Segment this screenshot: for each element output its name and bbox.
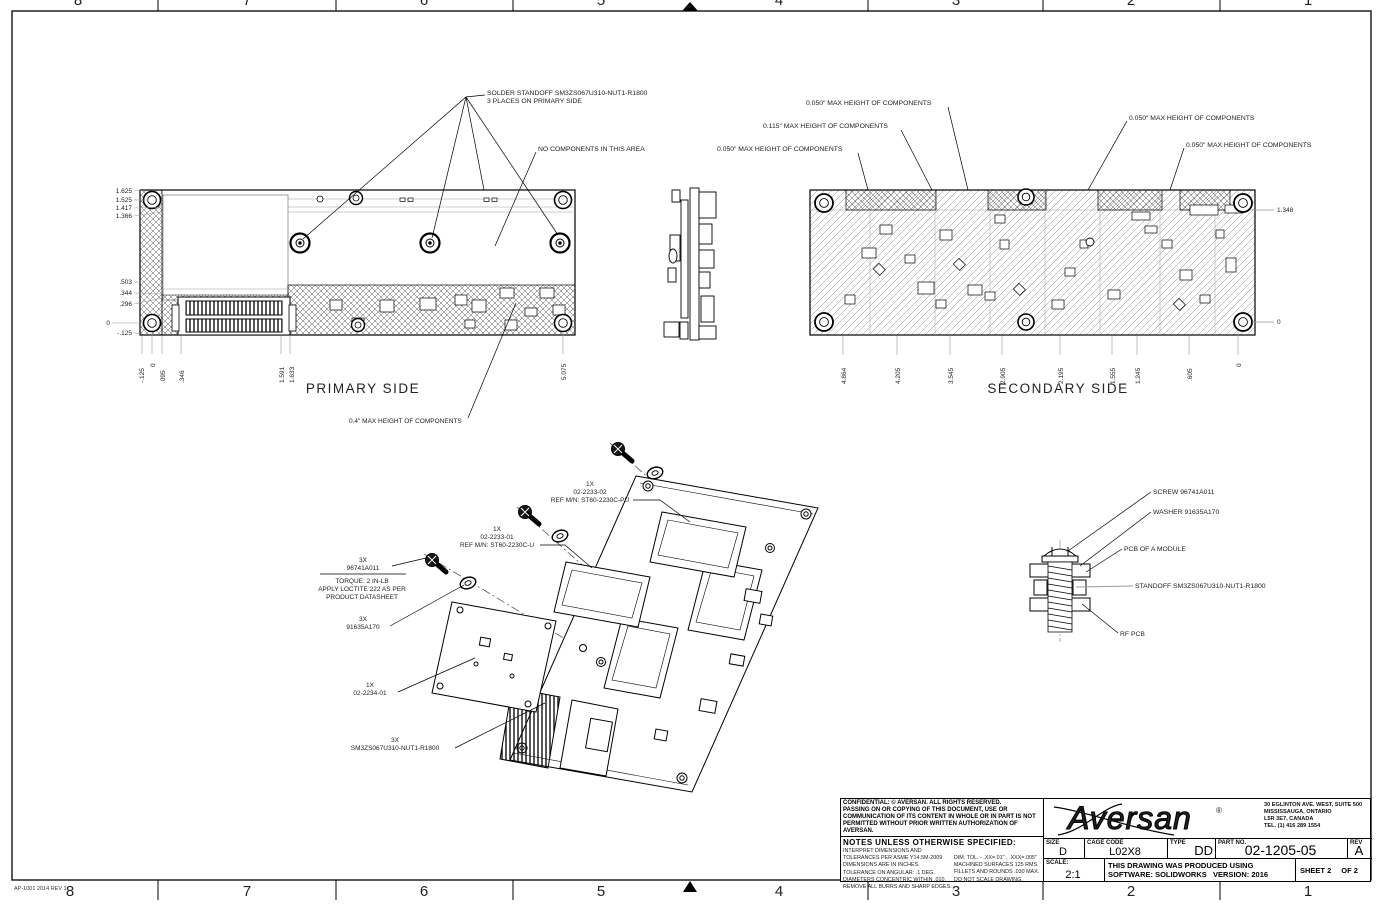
- standoff-detail-view: SCREW 96741A011 WASHER 91635A170 PCB OF …: [1030, 489, 1266, 642]
- title-block: CONFIDENTIAL: © AVERSAN. ALL RIGHTS RESE…: [840, 798, 1371, 882]
- zone-label: 7: [232, 883, 262, 900]
- zone-label: 1: [1293, 0, 1323, 9]
- label-nut-qty: 3X: [391, 737, 400, 744]
- detail-washer-label: WASHER 91635A170: [1153, 509, 1219, 516]
- zone-label: 2: [1116, 0, 1146, 9]
- notes-title: NOTES UNLESS OTHERWISE SPECIFIED:: [841, 837, 1043, 847]
- dim: -.125: [117, 330, 132, 337]
- company-address: 30 EGLINTON AVE. WEST, SUITE 500 MISSISS…: [1262, 799, 1372, 838]
- label-module-qty: 1X: [366, 682, 375, 689]
- zone-label: 5: [586, 0, 616, 9]
- dim: 1.525: [116, 197, 133, 204]
- type-field: TYPE DD: [1168, 839, 1216, 858]
- zone-label: 4: [764, 883, 794, 900]
- zone-label: 4: [764, 0, 794, 9]
- label-screw-pn: 96741A011: [347, 565, 380, 572]
- produced-with-field: THIS DRAWING WAS PRODUCED USING SOFTWARE…: [1105, 859, 1296, 881]
- primary-side-view: 1.625 1.525 1.417 1.366 .503 .344 .296 0…: [106, 90, 647, 425]
- dim: .503: [119, 279, 132, 286]
- detail-screw-label: SCREW 96741A011: [1153, 489, 1215, 496]
- label-washer-qty: 3X: [359, 616, 368, 623]
- exploded-assembly-view: 1X 02-2233-02 REF M/N: ST60-2230C-PU 1X …: [318, 443, 818, 793]
- label-torque-2: APPLY LOCTITE 222 AS PER: [318, 586, 406, 593]
- callout-no-components: NO COMPONENTS IN THIS AREA: [538, 146, 645, 153]
- label-conn-pu-qty: 1X: [586, 481, 595, 488]
- form-stamp: AP-1001 2014 REV 1: [14, 886, 67, 892]
- dim: 4.205: [895, 367, 902, 384]
- drawing-sheet: 1.625 1.525 1.417 1.366 .503 .344 .296 0…: [0, 0, 1383, 900]
- dim: .296: [119, 301, 132, 308]
- zone-label: 5: [586, 883, 616, 900]
- dim: 0: [1236, 363, 1243, 367]
- drawing-notes: INTERPRET DIMENSIONS AND TOLERANCES PER …: [841, 847, 1043, 892]
- zone-label: 1: [1293, 883, 1323, 900]
- center-mark-top: [682, 2, 698, 11]
- secondary-side-view: 0.050" MAX HEIGHT OF COMPONENTS 0.115" M…: [717, 100, 1312, 396]
- drawing-canvas: 1.625 1.525 1.417 1.366 .503 .344 .296 0…: [0, 0, 1383, 900]
- size-field: SIZE D: [1044, 839, 1085, 858]
- registered-mark: ®: [1216, 806, 1222, 815]
- label-nut-pn: SM3ZS067U310-NUT1-R1800: [351, 745, 440, 752]
- dim: 1.348: [1277, 207, 1294, 214]
- callout-max-height: 0.050" MAX HEIGHT OF COMPONENTS: [1186, 142, 1312, 149]
- label-conn-u-qty: 1X: [493, 526, 502, 533]
- rev-field: REV A: [1348, 839, 1372, 858]
- callout-max-height: 0.050" MAX HEIGHT OF COMPONENTS: [717, 146, 843, 153]
- module-pcb-02-2234-01: [432, 602, 556, 712]
- part-number-field: PART NO. 02-1205-05: [1216, 839, 1348, 858]
- side-profile-view: [664, 188, 716, 340]
- zone-label: 8: [63, 0, 93, 9]
- cage-code-field: CAGE CODE L02X8: [1085, 839, 1168, 858]
- dim: .605: [1187, 368, 1194, 381]
- callout-max-height: 0.050" MAX HEIGHT OF COMPONENTS: [1129, 115, 1255, 122]
- edge-connector: [172, 297, 296, 335]
- dim: 3.545: [948, 367, 955, 384]
- label-torque-3: PRODUCT DATASHEET: [326, 594, 398, 601]
- scale-field: SCALE: 2:1: [1044, 859, 1105, 881]
- label-washer-pn: 91635A170: [346, 624, 380, 631]
- dim: .346: [179, 370, 186, 383]
- label-conn-pu-pn: 02-2233-02: [573, 489, 607, 496]
- screws: [426, 443, 633, 573]
- center-mark-bottom: [683, 881, 697, 892]
- detail-standoff-label: STANDOFF SM3ZS067U310-NUT1-R1800: [1135, 583, 1266, 590]
- callout-solder-standoff: SOLDER STANDOFF SM3ZS067U310-NUT1-R1800: [487, 90, 648, 97]
- dim: 4.864: [841, 367, 848, 384]
- label-torque-1: TORQUE: 2 IN-LB: [335, 578, 388, 585]
- keepout-area: [163, 195, 288, 300]
- aversan-logo: Aversan ®: [1044, 799, 1262, 838]
- detail-rf-pcb-label: RF PCB: [1120, 631, 1145, 638]
- dim: 0: [1277, 319, 1281, 326]
- dim: .344: [119, 290, 132, 297]
- label-conn-u-ref: REF M/N: ST60-2230C-U: [460, 542, 534, 549]
- zone-label: 7: [232, 0, 262, 9]
- dim: 5.075: [561, 363, 568, 380]
- secondary-side-title: SECONDARY SIDE: [987, 381, 1128, 396]
- zone-label: 2: [1116, 883, 1146, 900]
- label-conn-u-pn: 02-2233-01: [480, 534, 514, 541]
- zone-label: 6: [409, 883, 439, 900]
- zone-label: 3: [941, 0, 971, 9]
- callout-max-height: 0.115" MAX HEIGHT OF COMPONENTS: [763, 123, 888, 130]
- company-name: Aversan: [1066, 800, 1192, 836]
- dim: -.125: [139, 368, 146, 383]
- dim: 0: [150, 363, 157, 367]
- dim: 1.417: [116, 205, 133, 212]
- confidential-notice: CONFIDENTIAL: © AVERSAN. ALL RIGHTS RESE…: [841, 799, 1043, 837]
- label-module-pn: 02-2234-01: [353, 690, 387, 697]
- dim: 1.591: [279, 366, 286, 383]
- label-conn-pu-ref: REF M/N: ST60-2230C-PU: [551, 497, 630, 504]
- dim: 1.245: [1135, 367, 1142, 384]
- dim: .095: [160, 370, 167, 383]
- sheet-field: SHEET 2 OF 2: [1296, 859, 1372, 881]
- callout-solder-standoff-2: 3 PLACES ON PRIMARY SIDE: [487, 98, 582, 105]
- primary-side-title: PRIMARY SIDE: [306, 381, 420, 396]
- dim: 0: [106, 320, 110, 327]
- dim: 1.633: [289, 366, 296, 383]
- dim: 1.625: [116, 188, 133, 195]
- callout-max-height: 0.050" MAX HEIGHT OF COMPONENTS: [806, 100, 932, 107]
- callout-max-height-primary: 0.4" MAX HEIGHT OF COMPONENTS: [349, 418, 462, 425]
- dim: 1.366: [116, 213, 133, 220]
- label-screw-qty: 3X: [359, 557, 368, 564]
- detail-pcb-module-label: PCB OF A MODULE: [1124, 546, 1186, 553]
- zone-label: 6: [409, 0, 439, 9]
